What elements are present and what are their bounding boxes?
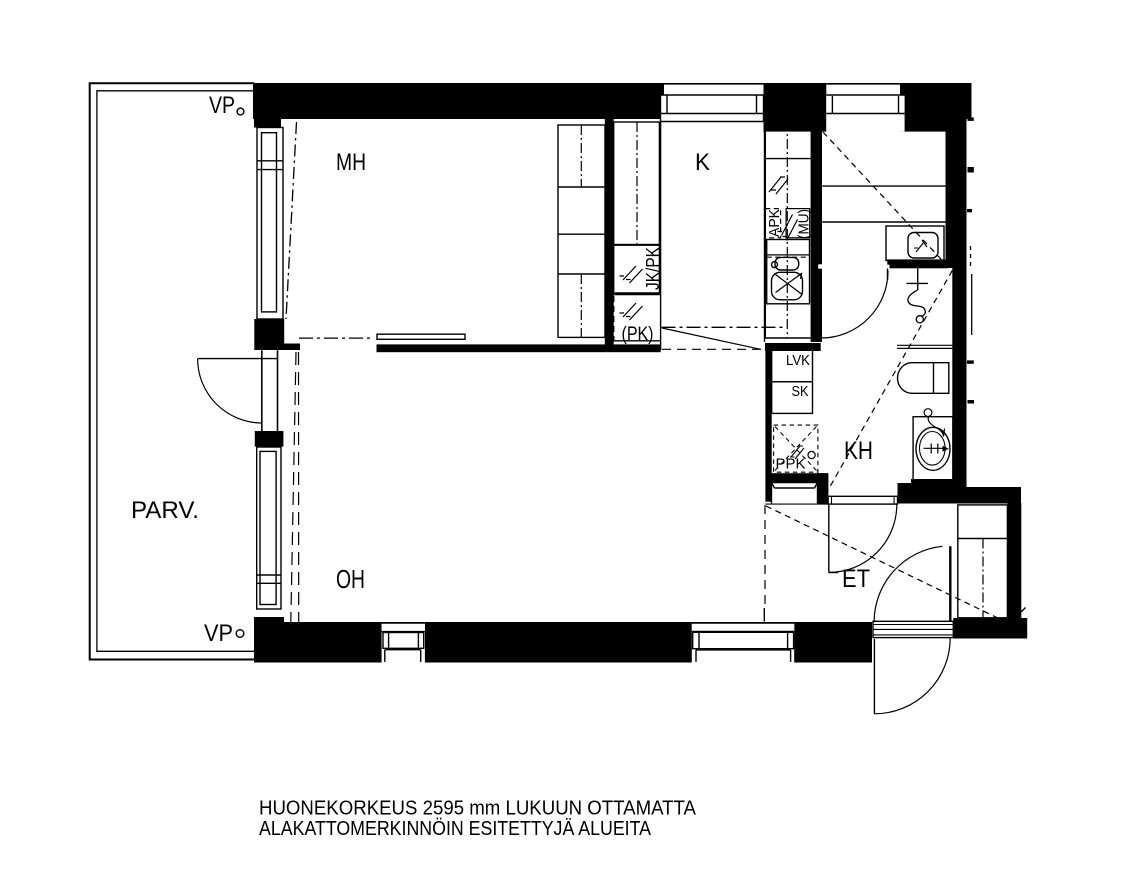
svg-text:OH: OH bbox=[336, 564, 365, 594]
svg-text:HUONEKORKEUS 2595 mm LUKUUN: HUONEKORKEUS 2595 mm LUKUUN OTTAMATTA bbox=[259, 798, 697, 820]
svg-text:PPK: PPK bbox=[776, 456, 806, 473]
svg-text:KH: KH bbox=[844, 437, 873, 465]
svg-text:MH: MH bbox=[336, 149, 366, 176]
svg-text:(PK): (PK) bbox=[622, 324, 654, 345]
svg-text:APK: APK bbox=[766, 209, 783, 237]
svg-text:PARV.: PARV. bbox=[131, 497, 199, 524]
svg-text:K: K bbox=[695, 149, 710, 176]
svg-text:LVK: LVK bbox=[786, 352, 810, 369]
svg-text:ALAKATTOMERKINNÖIN ESITETTYJÄ: ALAKATTOMERKINNÖIN ESITETTYJÄ ALUEITA bbox=[259, 818, 652, 840]
svg-text:ET: ET bbox=[842, 565, 870, 593]
svg-text:VP: VP bbox=[209, 92, 235, 119]
svg-text:VP: VP bbox=[204, 620, 233, 647]
svg-text:(MU): (MU) bbox=[796, 209, 813, 239]
svg-text:SK: SK bbox=[792, 383, 809, 400]
